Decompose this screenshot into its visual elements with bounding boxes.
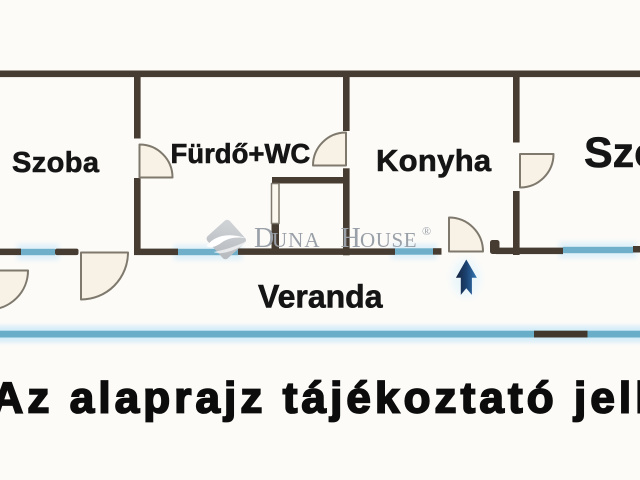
svg-text:Az alaprajz tájékoztató jelleg: Az alaprajz tájékoztató jellegű	[0, 374, 640, 423]
svg-text:Szoba: Szoba	[584, 129, 640, 177]
svg-text:Szoba: Szoba	[12, 147, 100, 179]
svg-text:H: H	[341, 223, 362, 254]
svg-text:Konyha: Konyha	[376, 143, 492, 178]
svg-text:Veranda: Veranda	[258, 279, 383, 315]
svg-text:OUSE: OUSE	[360, 228, 417, 252]
svg-text:®: ®	[422, 224, 431, 238]
svg-text:Fürdő+WC: Fürdő+WC	[171, 138, 311, 169]
svg-text:UNA: UNA	[272, 228, 321, 252]
